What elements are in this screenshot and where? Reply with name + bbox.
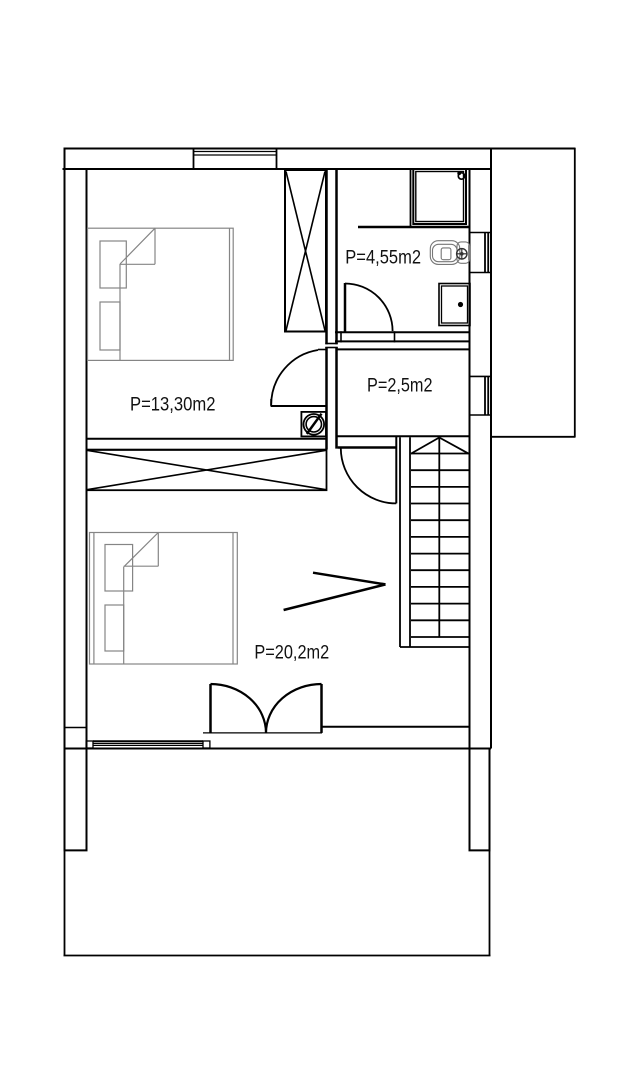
svg-text:P=2,5m2: P=2,5m2 bbox=[367, 375, 433, 397]
svg-text:P=4,55m2: P=4,55m2 bbox=[345, 247, 421, 269]
svg-text:P=13,30m2: P=13,30m2 bbox=[130, 394, 216, 416]
svg-text:P=20,2m2: P=20,2m2 bbox=[254, 642, 329, 664]
